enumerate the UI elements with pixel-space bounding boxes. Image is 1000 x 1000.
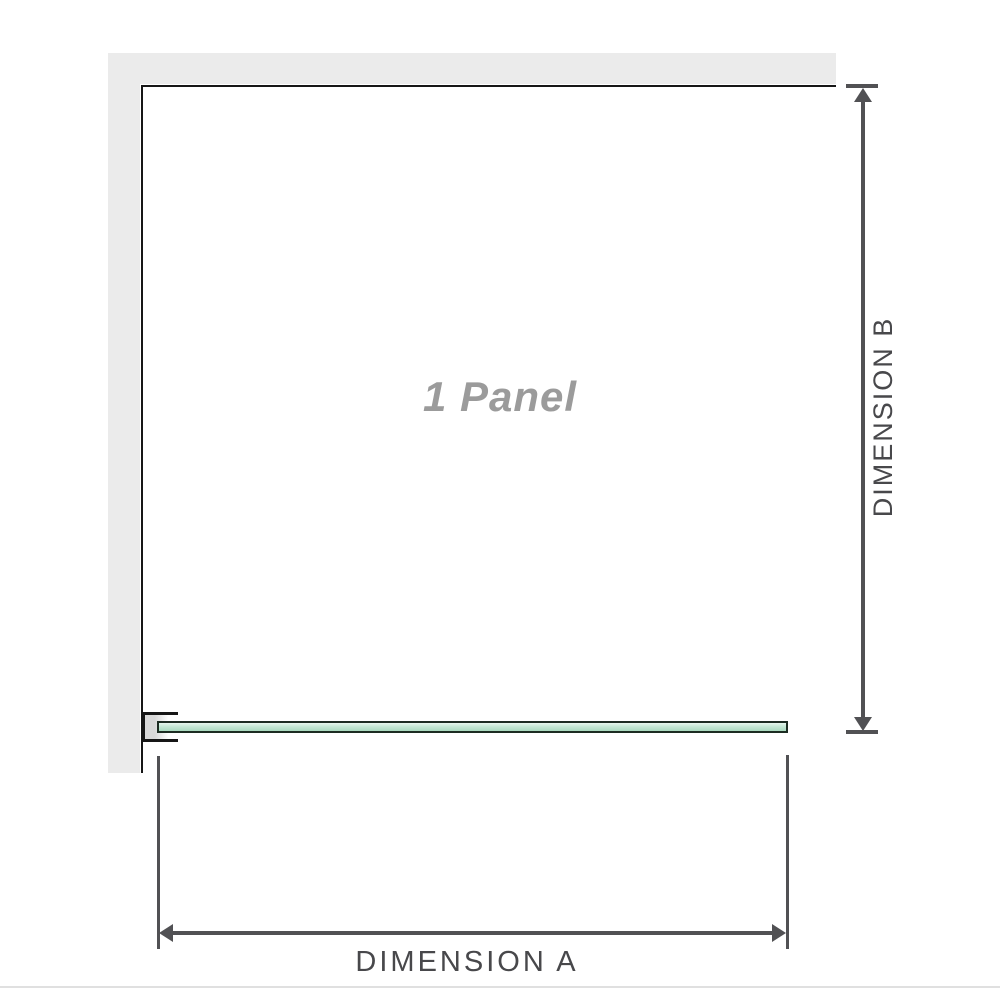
arrow-left-icon bbox=[159, 924, 173, 942]
dimension-b-label: DIMENSION B bbox=[868, 167, 902, 667]
dim-a-line bbox=[168, 931, 778, 935]
arrow-up-icon bbox=[854, 88, 872, 102]
dim-b-line bbox=[861, 94, 865, 722]
wall-top bbox=[108, 53, 836, 84]
arrow-down-icon bbox=[854, 717, 872, 731]
bottom-divider bbox=[0, 986, 1000, 988]
arrow-right-icon bbox=[772, 924, 786, 942]
dimension-diagram: 1 Panel DIMENSION B DIMENSION A bbox=[0, 0, 1000, 1000]
dimension-a-label: DIMENSION A bbox=[217, 946, 717, 980]
dim-a-extension-right bbox=[786, 755, 789, 949]
glass-panel bbox=[157, 721, 788, 733]
panel-count-label: 1 Panel bbox=[250, 370, 750, 426]
wall-left bbox=[108, 53, 140, 773]
dim-a-extension-left bbox=[157, 756, 160, 949]
wall-inner-edge-left bbox=[141, 85, 143, 773]
wall-inner-edge-top bbox=[141, 85, 836, 87]
